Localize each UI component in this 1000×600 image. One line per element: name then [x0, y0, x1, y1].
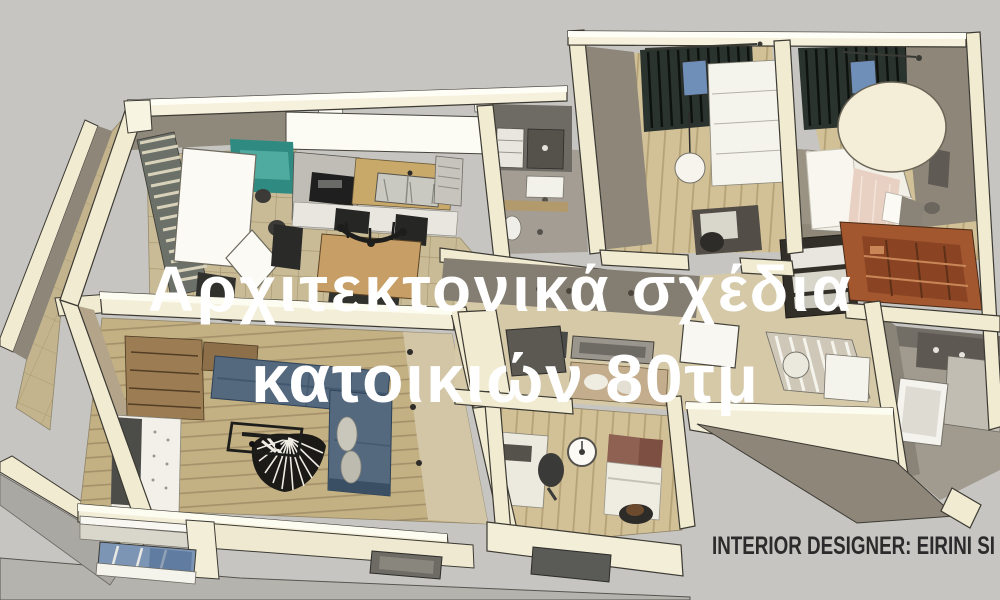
- svg-text:INTERIOR DESIGNER: EIRINI SI: INTERIOR DESIGNER: EIRINI SI: [712, 532, 995, 560]
- svg-text:Αρχιτεκτονικά σχέδια: Αρχιτεκτονικά σχέδια: [148, 253, 851, 325]
- svg-text:κατοικιών 80τμ: κατοικιών 80τμ: [251, 341, 758, 417]
